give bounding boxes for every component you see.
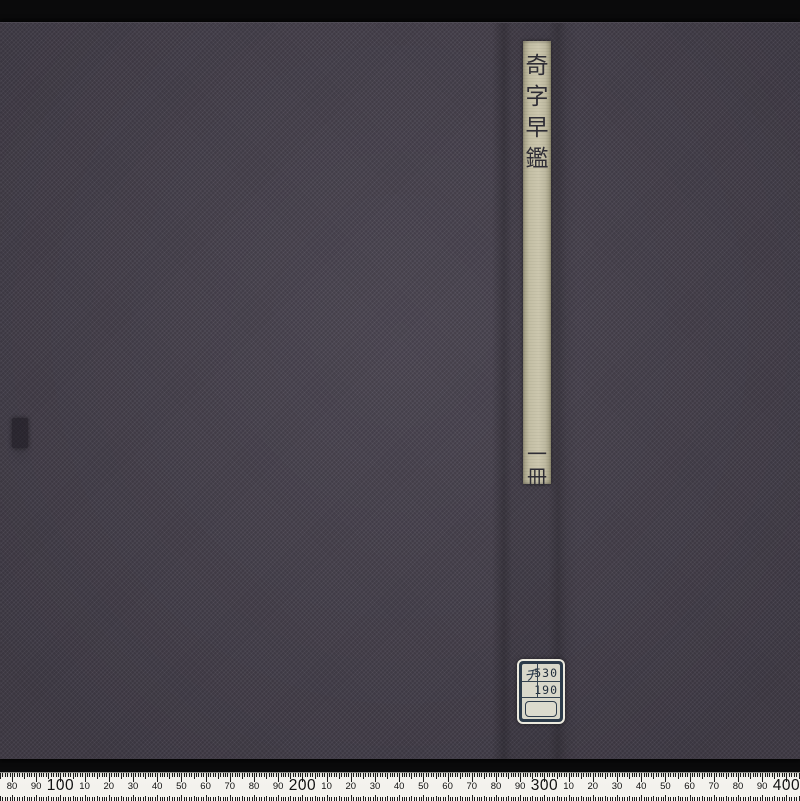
ruler-tick bbox=[602, 797, 603, 801]
ruler-tick bbox=[186, 773, 187, 777]
ruler-tick bbox=[760, 773, 761, 777]
ruler-tick bbox=[111, 797, 112, 801]
ruler-tick bbox=[317, 797, 318, 801]
ruler-tick bbox=[648, 773, 649, 777]
ruler-tick bbox=[118, 773, 119, 777]
ruler-tick bbox=[740, 797, 741, 801]
ruler-tick bbox=[748, 797, 749, 801]
ruler-tick bbox=[607, 797, 608, 801]
title-character: 早 bbox=[526, 113, 549, 144]
ruler-tick bbox=[772, 797, 773, 801]
ruler-tick bbox=[218, 796, 219, 801]
ruler-tick bbox=[445, 797, 446, 801]
ruler-tick bbox=[515, 773, 516, 777]
ruler-tick bbox=[530, 797, 531, 801]
ruler-tick bbox=[140, 773, 141, 777]
ruler-tick bbox=[564, 797, 565, 801]
ruler-tick bbox=[406, 773, 407, 777]
ruler-tick bbox=[331, 797, 332, 801]
ruler-tick bbox=[474, 797, 475, 801]
ruler-tick bbox=[380, 773, 381, 777]
ruler-tick bbox=[566, 797, 567, 801]
ruler-number: 90 bbox=[273, 781, 284, 792]
ruler-number: 10 bbox=[563, 781, 574, 792]
ruler-tick bbox=[99, 797, 100, 801]
ruler-tick bbox=[346, 773, 347, 777]
ruler-number: 80 bbox=[733, 781, 744, 792]
ruler-tick bbox=[22, 797, 23, 801]
ruler-tick bbox=[414, 797, 415, 801]
ruler-tick bbox=[513, 797, 514, 801]
ruler-tick bbox=[82, 773, 83, 777]
ruler-tick bbox=[745, 797, 746, 801]
ruler-tick bbox=[99, 773, 100, 777]
ruler-tick bbox=[116, 773, 117, 777]
call-number-row-bottom: 190 bbox=[522, 682, 560, 697]
ruler-tick bbox=[457, 797, 458, 801]
ruler-tick bbox=[455, 773, 456, 777]
ruler-tick bbox=[89, 797, 90, 801]
ruler-tick bbox=[14, 797, 15, 801]
ruler-tick bbox=[392, 773, 393, 777]
ruler-tick bbox=[89, 773, 90, 777]
ruler-tick bbox=[750, 773, 751, 779]
ruler-tick bbox=[191, 797, 192, 801]
ruler-tick bbox=[317, 773, 318, 777]
ruler-tick bbox=[114, 773, 115, 777]
call-number-panel: チ 530 190 bbox=[522, 664, 560, 719]
ruler-tick bbox=[29, 797, 30, 801]
ruler-tick bbox=[750, 796, 751, 801]
ruler-tick bbox=[43, 773, 44, 777]
ruler-number: 40 bbox=[394, 781, 405, 792]
call-number-row-top: チ 530 bbox=[522, 664, 560, 681]
ruler-tick bbox=[494, 773, 495, 777]
ruler-tick bbox=[527, 797, 528, 801]
ruler-number: 20 bbox=[588, 781, 599, 792]
ruler-tick bbox=[743, 773, 744, 777]
ruler-tick bbox=[237, 773, 238, 777]
ruler-tick bbox=[673, 797, 674, 801]
ruler-tick bbox=[77, 797, 78, 801]
ruler-tick bbox=[515, 797, 516, 801]
ruler-tick bbox=[341, 773, 342, 777]
call-number-border: チ 530 190 bbox=[519, 661, 563, 722]
ruler-tick bbox=[220, 773, 221, 777]
ruler-tick bbox=[636, 797, 637, 801]
ruler-tick bbox=[177, 773, 178, 777]
ruler-tick bbox=[629, 773, 630, 779]
ruler-tick bbox=[629, 796, 630, 801]
ruler-tick bbox=[658, 773, 659, 777]
ruler-tick bbox=[256, 797, 257, 801]
ruler-tick bbox=[22, 773, 23, 777]
ruler-tick bbox=[651, 773, 652, 777]
ruler-tick bbox=[624, 773, 625, 777]
ruler-tick bbox=[767, 773, 768, 777]
ruler-tick bbox=[194, 773, 195, 779]
ruler-tick bbox=[428, 797, 429, 801]
ruler-tick bbox=[370, 797, 371, 801]
ruler-tick bbox=[728, 797, 729, 801]
ruler-tick bbox=[167, 773, 168, 777]
ruler-tick bbox=[358, 797, 359, 801]
ruler-tick bbox=[157, 795, 158, 801]
ruler-tick bbox=[656, 773, 657, 777]
ruler-tick bbox=[409, 797, 410, 801]
ruler-tick bbox=[573, 773, 574, 777]
ruler-tick bbox=[247, 773, 248, 777]
ruler-tick bbox=[143, 797, 144, 801]
ruler-tick bbox=[150, 773, 151, 777]
ruler-tick bbox=[627, 773, 628, 777]
book-title-vertical: 奇 字 早 鑑 bbox=[523, 51, 551, 175]
ruler-tick bbox=[474, 773, 475, 777]
ruler-tick bbox=[448, 795, 449, 801]
ruler-tick bbox=[634, 797, 635, 801]
ruler-tick bbox=[94, 797, 95, 801]
ruler-tick bbox=[755, 797, 756, 801]
ruler-tick bbox=[460, 796, 461, 801]
ruler-tick bbox=[610, 773, 611, 777]
ruler-tick bbox=[177, 797, 178, 801]
ruler-tick bbox=[535, 797, 536, 801]
ruler-tick bbox=[259, 797, 260, 801]
ruler-number: 60 bbox=[200, 781, 211, 792]
ruler-tick bbox=[266, 796, 267, 801]
ruler-tick bbox=[97, 773, 98, 779]
ruler-tick bbox=[254, 795, 255, 801]
ruler-tick bbox=[283, 797, 284, 801]
ruler-tick bbox=[123, 797, 124, 801]
ruler-tick bbox=[477, 797, 478, 801]
ruler-tick bbox=[450, 797, 451, 801]
ruler-tick bbox=[416, 797, 417, 801]
ruler-tick bbox=[17, 773, 18, 777]
ruler-tick bbox=[70, 797, 71, 801]
ruler-tick bbox=[247, 797, 248, 801]
ruler-tick bbox=[31, 773, 32, 777]
ruler-tick bbox=[145, 796, 146, 801]
ruler-tick bbox=[298, 797, 299, 801]
ruler-tick bbox=[726, 796, 727, 801]
ruler-tick bbox=[290, 796, 291, 801]
ruler-tick bbox=[169, 773, 170, 779]
ruler-tick bbox=[799, 796, 800, 801]
ruler-tick bbox=[484, 773, 485, 779]
ruler-tick bbox=[506, 797, 507, 801]
ruler-tick bbox=[2, 773, 3, 777]
ruler-tick bbox=[428, 773, 429, 777]
ruler-tick bbox=[65, 797, 66, 801]
ruler-tick bbox=[189, 797, 190, 801]
ruler-tick bbox=[273, 797, 274, 801]
ruler-tick bbox=[336, 797, 337, 801]
ruler-tick bbox=[334, 773, 335, 777]
ruler-tick bbox=[353, 773, 354, 777]
ruler-tick bbox=[404, 773, 405, 777]
ruler-tick bbox=[733, 773, 734, 777]
ruler-tick bbox=[387, 773, 388, 779]
ruler-tick bbox=[484, 796, 485, 801]
ruler-tick bbox=[438, 773, 439, 777]
ruler-number: 70 bbox=[225, 781, 236, 792]
ruler-tick bbox=[714, 795, 715, 801]
ruler-tick bbox=[382, 797, 383, 801]
ruler-tick bbox=[312, 797, 313, 801]
ruler-tick bbox=[75, 797, 76, 801]
ruler-tick bbox=[769, 797, 770, 801]
ruler-tick bbox=[184, 797, 185, 801]
ruler-tick bbox=[641, 795, 642, 801]
ruler-tick bbox=[164, 773, 165, 777]
ruler-tick bbox=[501, 797, 502, 801]
ruler-tick bbox=[520, 795, 521, 801]
ruler-tick bbox=[467, 773, 468, 777]
ruler-tick bbox=[82, 797, 83, 801]
ruler-tick bbox=[368, 773, 369, 777]
ruler-tick bbox=[506, 773, 507, 777]
label-divider bbox=[537, 664, 538, 697]
ruler-tick bbox=[60, 795, 61, 801]
ruler-tick bbox=[223, 773, 224, 777]
ruler-tick bbox=[578, 797, 579, 801]
ruler-tick bbox=[87, 773, 88, 777]
ruler-tick bbox=[41, 797, 42, 801]
ruler-tick bbox=[14, 773, 15, 777]
ruler-tick bbox=[281, 797, 282, 801]
ruler-tick bbox=[302, 795, 303, 801]
ruler-tick bbox=[97, 796, 98, 801]
ruler-tick bbox=[29, 773, 30, 777]
ruler-tick bbox=[85, 795, 86, 801]
ruler-tick bbox=[663, 773, 664, 777]
ruler-tick bbox=[225, 797, 226, 801]
ruler-tick bbox=[285, 773, 286, 777]
ruler-tick bbox=[266, 773, 267, 779]
ruler-tick bbox=[402, 797, 403, 801]
ruler-tick bbox=[329, 797, 330, 801]
ruler-tick bbox=[174, 773, 175, 777]
ruler-tick bbox=[622, 797, 623, 801]
ruler-tick bbox=[523, 773, 524, 777]
ruler-tick bbox=[581, 773, 582, 779]
ruler-tick bbox=[152, 773, 153, 777]
ruler-tick bbox=[92, 797, 93, 801]
ruler-tick bbox=[390, 797, 391, 801]
ruler-tick bbox=[80, 773, 81, 777]
ruler-tick bbox=[334, 797, 335, 801]
ruler-tick bbox=[559, 773, 560, 777]
ruler-tick bbox=[164, 797, 165, 801]
ruler-tick bbox=[532, 796, 533, 801]
ruler-tick bbox=[721, 773, 722, 777]
ruler-tick bbox=[87, 797, 88, 801]
ruler-tick bbox=[24, 773, 25, 779]
ruler-tick bbox=[494, 797, 495, 801]
ruler-tick bbox=[36, 795, 37, 801]
ruler-tick bbox=[576, 773, 577, 777]
ruler-tick bbox=[194, 796, 195, 801]
volume-character: 一 bbox=[527, 443, 547, 466]
ruler-tick bbox=[571, 797, 572, 801]
ruler-number: 20 bbox=[346, 781, 357, 792]
ruler-tick bbox=[719, 773, 720, 777]
ruler-number: 30 bbox=[612, 781, 623, 792]
ruler-tick bbox=[653, 773, 654, 779]
ruler-tick bbox=[131, 773, 132, 777]
ruler-number: 50 bbox=[176, 781, 187, 792]
ruler-tick bbox=[34, 773, 35, 777]
ruler-tick bbox=[249, 797, 250, 801]
ruler-tick bbox=[501, 773, 502, 777]
ruler-tick bbox=[150, 797, 151, 801]
ruler-tick bbox=[479, 773, 480, 777]
ruler-tick bbox=[469, 797, 470, 801]
ruler-tick bbox=[431, 773, 432, 777]
ruler-tick bbox=[465, 797, 466, 801]
ruler-tick bbox=[605, 773, 606, 779]
ruler-tick bbox=[179, 773, 180, 777]
ruler-tick bbox=[486, 797, 487, 801]
ruler-tick bbox=[685, 797, 686, 801]
ruler-tick bbox=[172, 797, 173, 801]
ruler-tick bbox=[694, 797, 695, 801]
ruler-tick bbox=[392, 797, 393, 801]
ruler-tick bbox=[496, 795, 497, 801]
ruler-tick bbox=[382, 773, 383, 777]
ruler-tick bbox=[709, 797, 710, 801]
ruler-tick bbox=[0, 796, 1, 801]
ruler-tick bbox=[426, 773, 427, 777]
ruler-tick bbox=[523, 797, 524, 801]
ruler-tick bbox=[443, 797, 444, 801]
ruler-tick bbox=[394, 797, 395, 801]
ruler-tick bbox=[397, 773, 398, 777]
ruler-tick bbox=[358, 773, 359, 777]
ruler-tick bbox=[508, 796, 509, 801]
ruler-tick bbox=[743, 797, 744, 801]
ruler-tick bbox=[225, 773, 226, 777]
ruler-tick bbox=[612, 773, 613, 777]
ruler-tick bbox=[203, 797, 204, 801]
ruler-tick bbox=[723, 773, 724, 777]
ruler-tick bbox=[586, 797, 587, 801]
ruler-tick bbox=[394, 773, 395, 777]
ruler-tick bbox=[227, 797, 228, 801]
ruler-tick bbox=[668, 797, 669, 801]
ruler-tick bbox=[261, 797, 262, 801]
ruler-tick bbox=[324, 797, 325, 801]
ruler-tick bbox=[670, 773, 671, 777]
ruler-tick bbox=[462, 797, 463, 801]
ruler-tick bbox=[315, 796, 316, 801]
ruler-tick bbox=[10, 773, 11, 777]
ruler-tick bbox=[452, 773, 453, 777]
ruler-tick bbox=[341, 797, 342, 801]
ruler-tick bbox=[569, 795, 570, 801]
ruler-tick bbox=[215, 773, 216, 777]
ruler-tick bbox=[736, 773, 737, 777]
ruler-tick bbox=[365, 773, 366, 777]
ruler-tick bbox=[440, 773, 441, 777]
ruler-tick bbox=[34, 797, 35, 801]
ruler-tick bbox=[208, 773, 209, 777]
ruler-tick bbox=[753, 797, 754, 801]
ruler-tick bbox=[109, 795, 110, 801]
ruler-tick bbox=[118, 797, 119, 801]
ruler-tick bbox=[525, 773, 526, 777]
ruler-tick bbox=[571, 773, 572, 777]
ruler-tick bbox=[690, 795, 691, 801]
ruler-tick bbox=[586, 773, 587, 777]
ruler-tick bbox=[135, 797, 136, 801]
ruler-tick bbox=[92, 773, 93, 777]
ruler-tick bbox=[27, 797, 28, 801]
ruler-tick bbox=[636, 773, 637, 777]
ruler-tick bbox=[411, 773, 412, 779]
ruler-tick bbox=[648, 797, 649, 801]
measurement-ruler: 8090100102030405060708090200102030405060… bbox=[0, 772, 800, 801]
ruler-tick bbox=[673, 773, 674, 777]
volume-label: 一 冊 bbox=[523, 443, 551, 489]
ruler-tick bbox=[281, 773, 282, 777]
ruler-number: 40 bbox=[152, 781, 163, 792]
ruler-tick bbox=[148, 797, 149, 801]
ruler-tick bbox=[339, 796, 340, 801]
ruler-tick bbox=[319, 773, 320, 777]
ruler-tick bbox=[769, 773, 770, 777]
ruler-tick bbox=[43, 797, 44, 801]
ruler-tick bbox=[344, 797, 345, 801]
title-character: 奇 bbox=[526, 51, 549, 82]
ruler-tick bbox=[375, 795, 376, 801]
ruler-tick bbox=[135, 773, 136, 777]
ruler-tick bbox=[27, 773, 28, 777]
ruler-tick bbox=[680, 797, 681, 801]
ruler-tick bbox=[753, 773, 754, 777]
ruler-tick bbox=[39, 797, 40, 801]
ruler-tick bbox=[63, 797, 64, 801]
ruler-tick bbox=[184, 773, 185, 777]
ruler-tick bbox=[619, 797, 620, 801]
ruler-tick bbox=[544, 795, 545, 801]
ruler-tick bbox=[39, 773, 40, 777]
ruler-tick bbox=[559, 797, 560, 801]
ruler-tick bbox=[561, 773, 562, 777]
ruler-tick bbox=[271, 797, 272, 801]
ruler-tick bbox=[653, 796, 654, 801]
ruler-tick bbox=[53, 797, 54, 801]
ruler-tick bbox=[7, 773, 8, 777]
ruler-tick bbox=[789, 797, 790, 801]
ruler-tick bbox=[593, 795, 594, 801]
ruler-tick bbox=[443, 773, 444, 777]
ruler-tick bbox=[786, 795, 787, 801]
ruler-tick bbox=[397, 797, 398, 801]
ruler-tick bbox=[491, 773, 492, 777]
ruler-tick bbox=[116, 797, 117, 801]
ruler-tick bbox=[619, 773, 620, 777]
ruler-number: 50 bbox=[418, 781, 429, 792]
ruler-number: 300 bbox=[531, 777, 558, 795]
ruler-tick bbox=[198, 773, 199, 777]
ruler-tick bbox=[283, 773, 284, 777]
ruler-tick bbox=[387, 796, 388, 801]
ruler-tick bbox=[239, 773, 240, 777]
ruler-tick bbox=[694, 773, 695, 777]
ruler-tick bbox=[508, 773, 509, 779]
